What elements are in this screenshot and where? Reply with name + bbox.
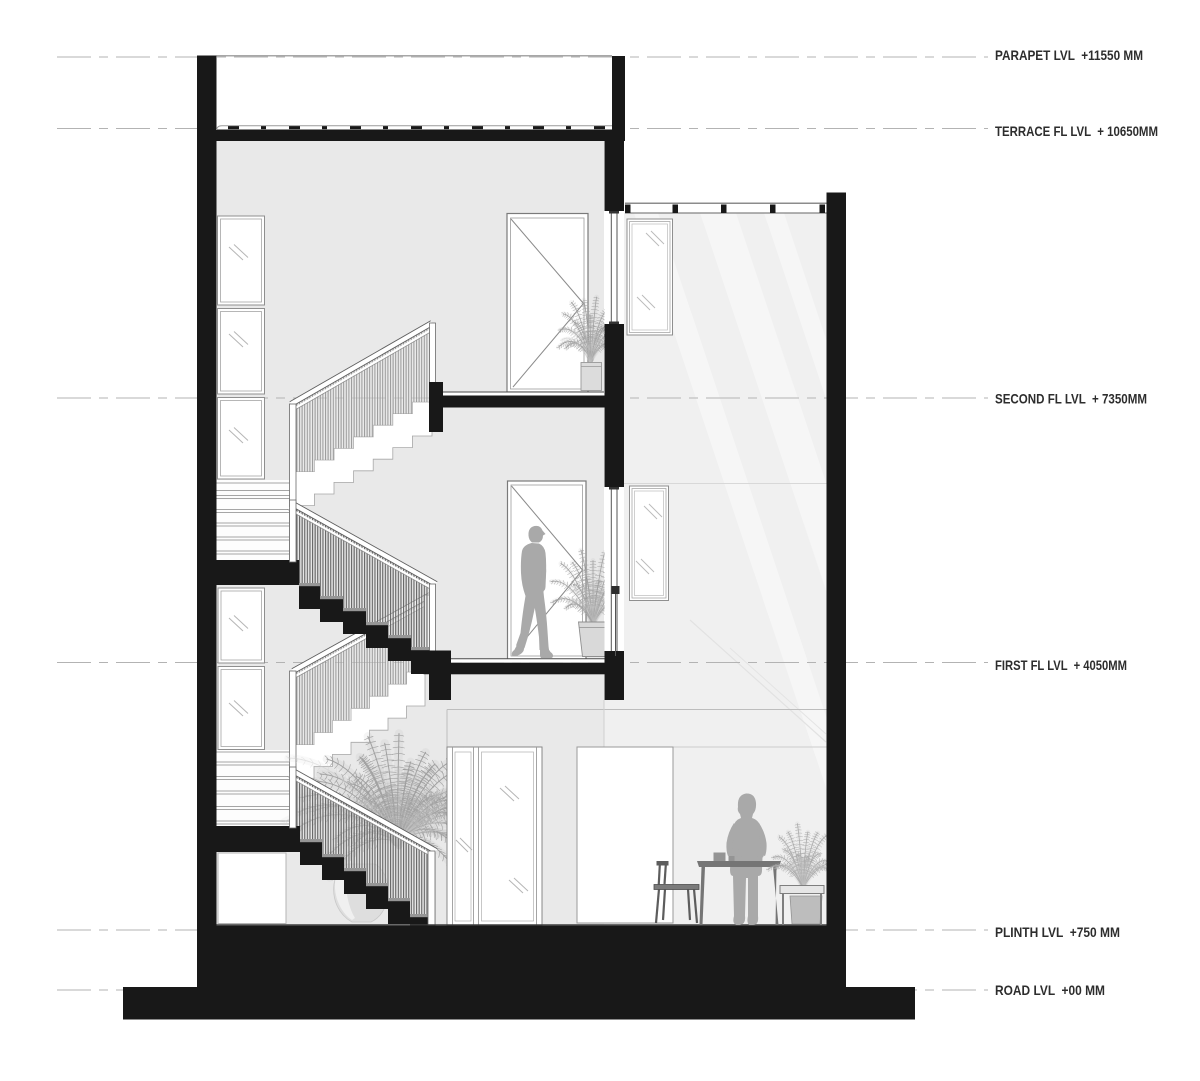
svg-text:PARAPET LVL +11550 MM: PARAPET LVL +11550 MM: [995, 47, 1143, 63]
svg-text:PLINTH LVL +750 MM: PLINTH LVL +750 MM: [995, 924, 1120, 940]
svg-text:FIRST FL LVL + 4050MM: FIRST FL LVL + 4050MM: [995, 657, 1127, 673]
svg-text:SECOND FL LVL + 7350MM: SECOND FL LVL + 7350MM: [995, 390, 1147, 406]
svg-text:TERRACE FL LVL + 10650MM: TERRACE FL LVL + 10650MM: [995, 123, 1158, 139]
svg-text:ROAD LVL +00 MM: ROAD LVL +00 MM: [995, 982, 1105, 998]
